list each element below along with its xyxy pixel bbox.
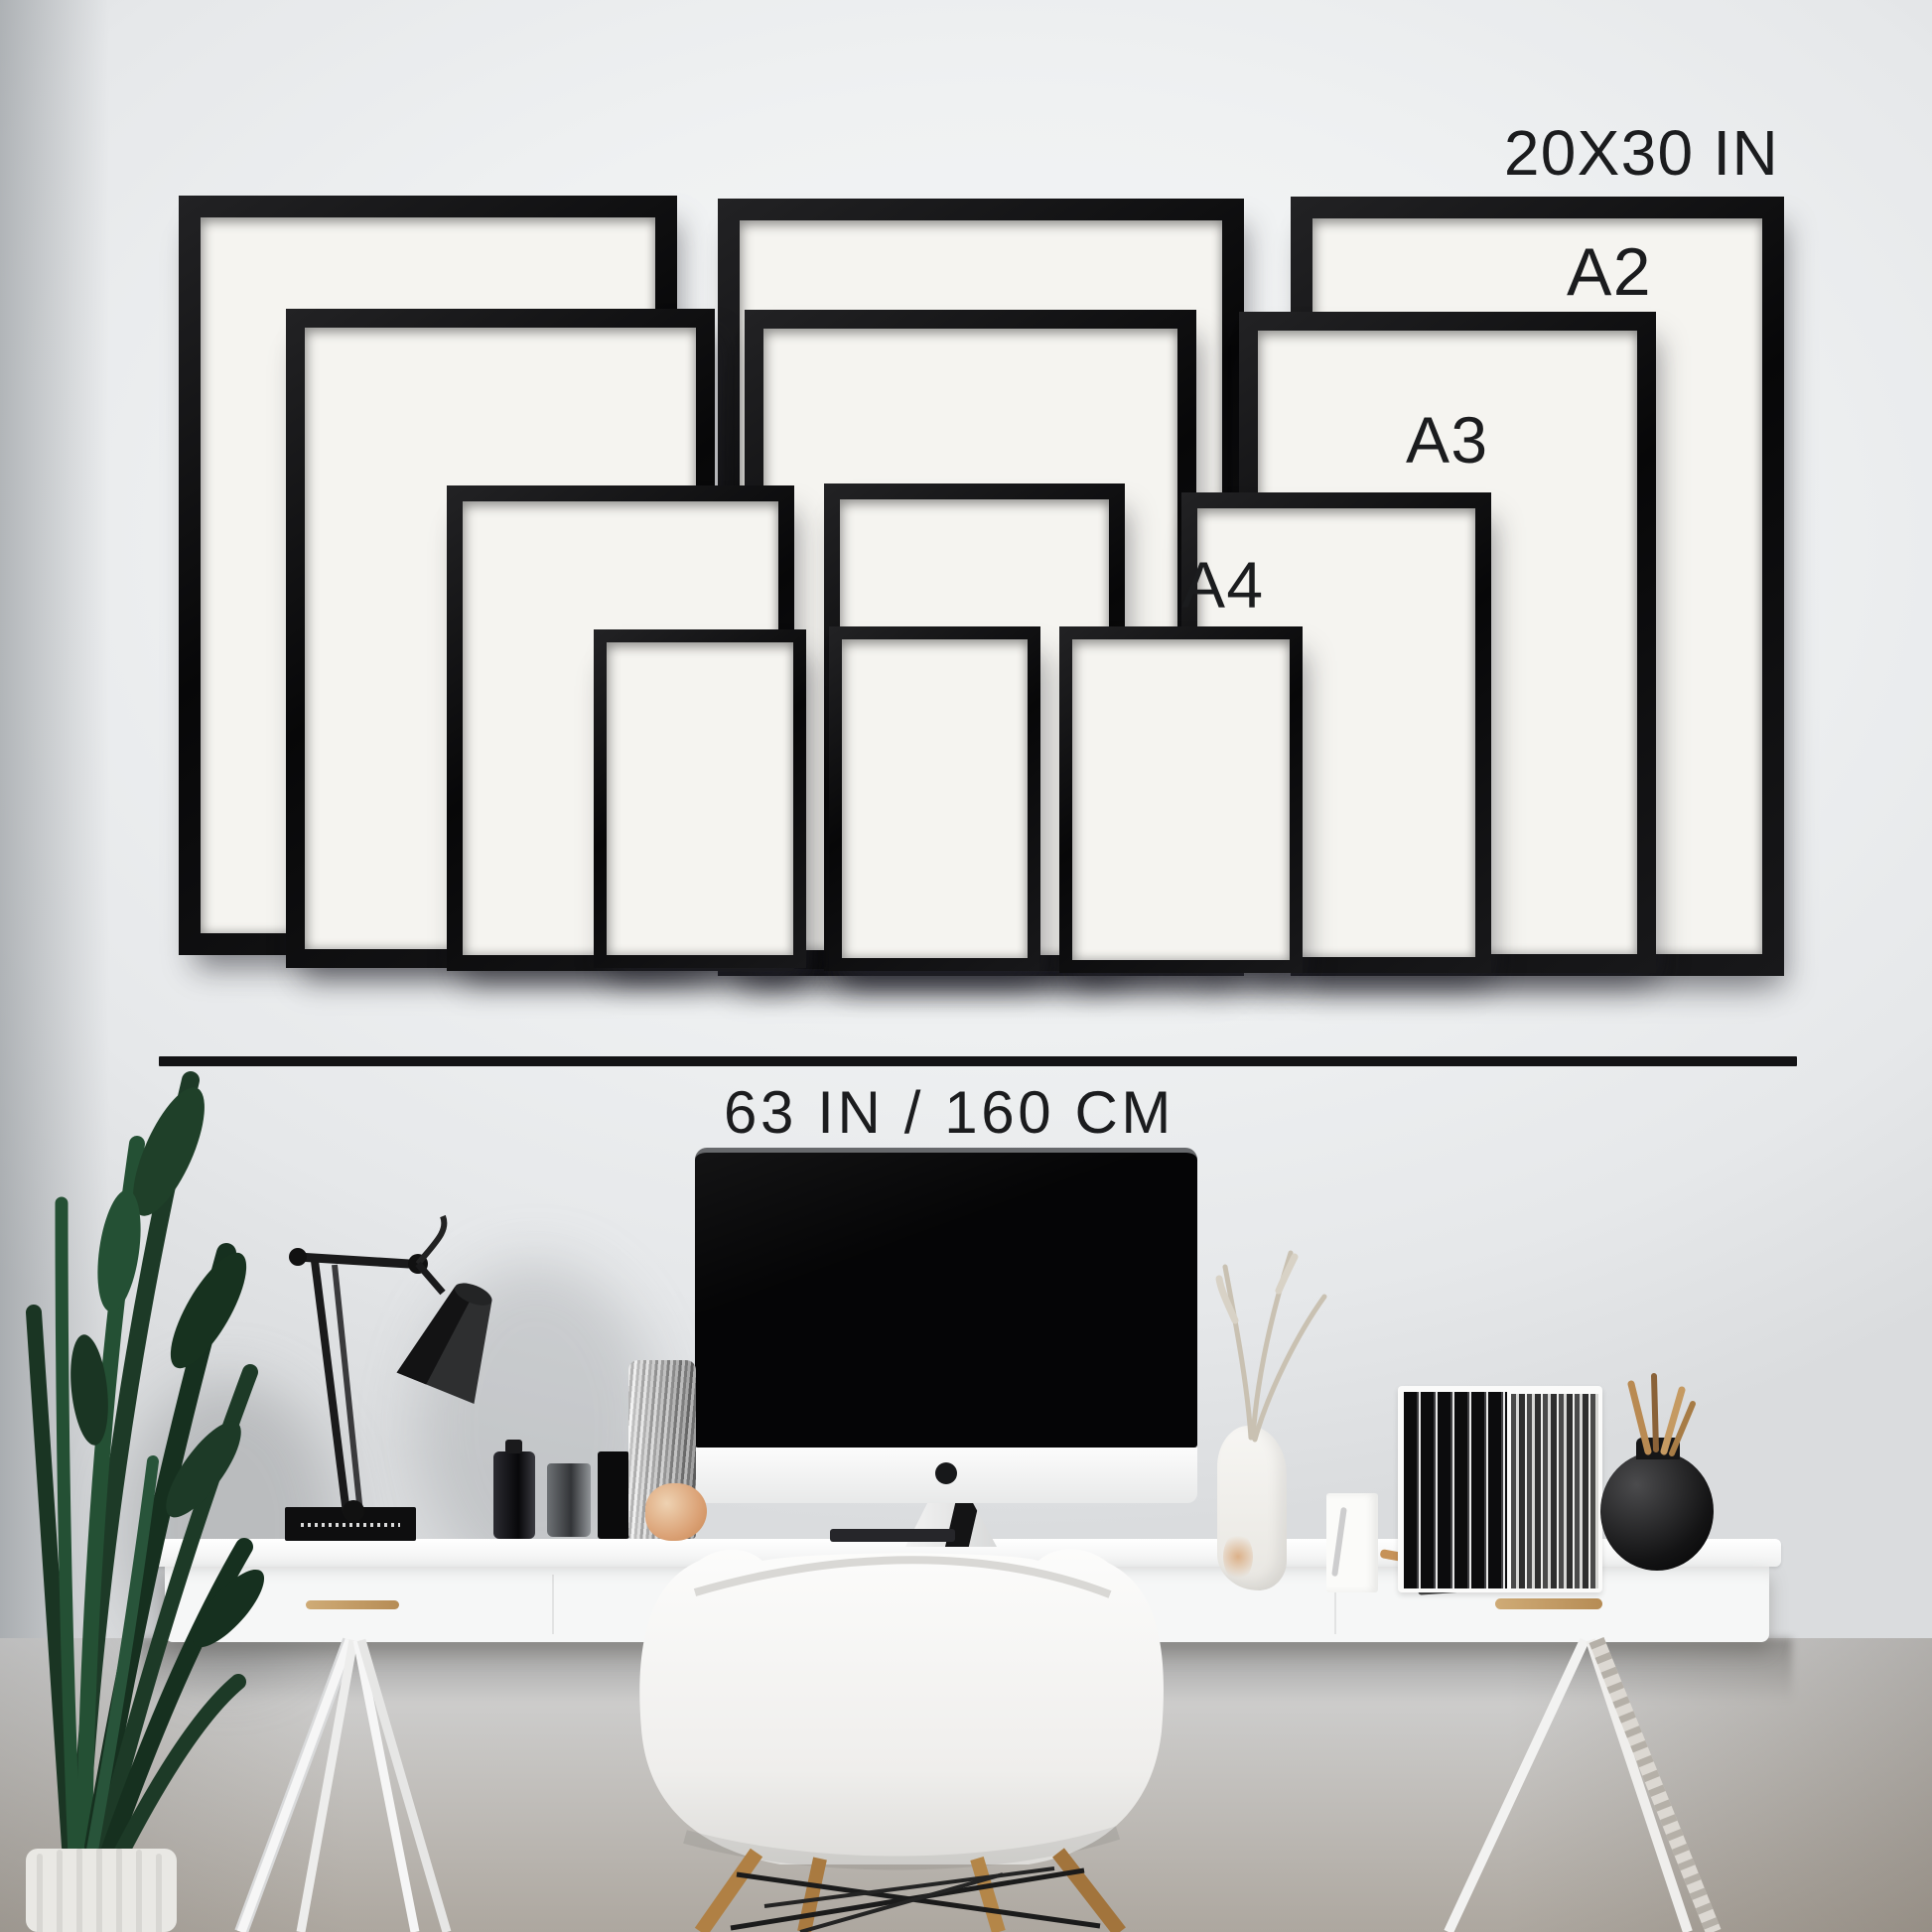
- mockup-scene: 20X30 IN A2 A3 A4 63 IN / 160 CM: [0, 0, 1932, 1932]
- dried-branches: [1219, 1253, 1324, 1440]
- desk-trestle-left: [241, 1640, 447, 1932]
- eames-armchair: [639, 1549, 1164, 1932]
- desk-trestle-right: [1449, 1640, 1714, 1932]
- scene-overlay: [0, 0, 1932, 1932]
- wood-sticks: [1631, 1376, 1693, 1453]
- lamp-shade: [397, 1271, 515, 1404]
- palm-plant: [26, 1078, 275, 1932]
- task-lamp: [289, 1216, 515, 1522]
